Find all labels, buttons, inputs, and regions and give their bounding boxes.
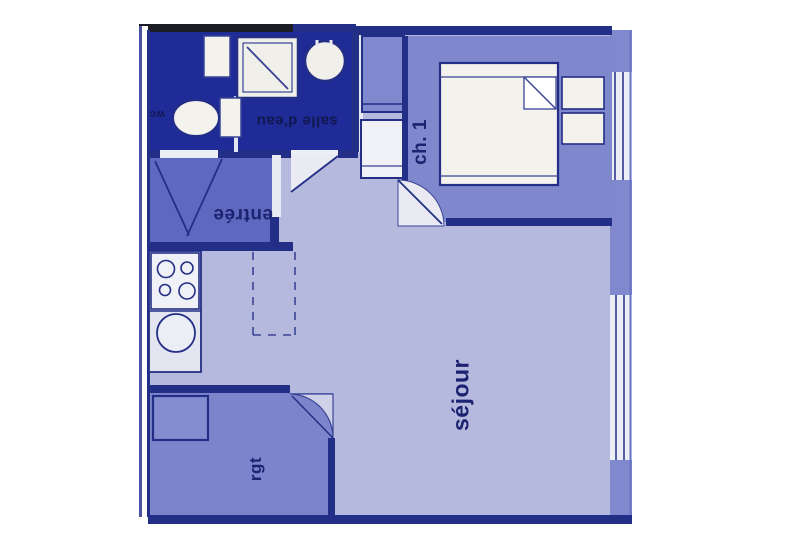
floor-plan-drawing xyxy=(0,0,800,534)
sejour-window-icon xyxy=(610,295,632,460)
toilet-icon xyxy=(173,98,241,137)
room-label-wc: wc xyxy=(149,108,165,120)
floor-plan-page: salle d'eau wc entrée ch. 1 séjour rgt xyxy=(0,0,800,534)
shower-tray-icon xyxy=(237,37,298,98)
room-label-chambre1: ch. 1 xyxy=(410,119,432,165)
right-wall xyxy=(610,30,632,520)
double-bed-icon xyxy=(440,63,558,185)
closet-column xyxy=(361,36,405,178)
room-label-sejour: séjour xyxy=(448,359,475,431)
room-label-rangement: rgt xyxy=(246,457,266,481)
pillow-fold-icon xyxy=(524,77,556,109)
bedroom-window-icon xyxy=(610,72,632,180)
room-label-salle-deau: salle d'eau xyxy=(256,113,338,130)
round-basin-icon xyxy=(305,40,345,81)
room-label-entree: entrée xyxy=(213,203,273,225)
washbasin-shelf-icon xyxy=(204,36,230,77)
kitchen-sink-icon xyxy=(157,314,195,352)
stove-icon xyxy=(149,253,201,311)
entree-floor xyxy=(148,158,272,244)
